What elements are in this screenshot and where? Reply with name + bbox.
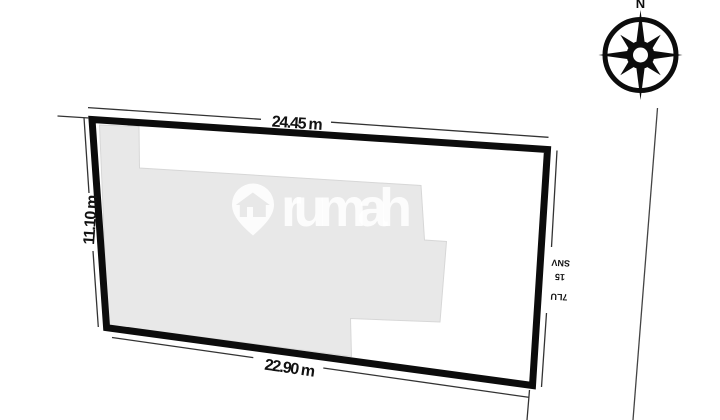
svg-text:7LU: 7LU	[550, 292, 568, 303]
svg-text:15: 15	[555, 272, 566, 283]
svg-text:SNV: SNV	[551, 258, 570, 269]
svg-text:24.45 m: 24.45 m	[271, 114, 323, 134]
svg-text:11.10 m: 11.10 m	[81, 194, 101, 245]
svg-text:N: N	[636, 0, 645, 11]
svg-text:rumah: rumah	[281, 178, 409, 238]
